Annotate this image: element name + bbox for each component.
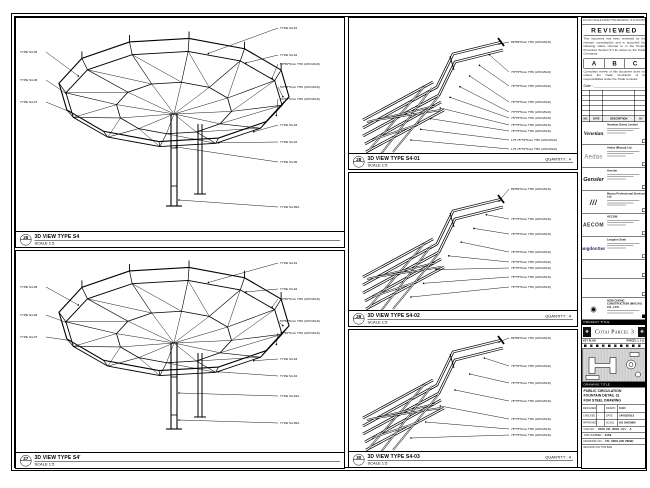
key-plan	[582, 344, 646, 383]
revision-row	[582, 106, 646, 111]
caption-bar: 26 3D VIEW TYPE S4 SCALE 1:5	[16, 231, 344, 247]
footer-note: REVISION ON THIS BAR	[582, 445, 646, 451]
revision-row	[582, 91, 646, 96]
leader-label: TYPE S4-05A	[280, 421, 300, 425]
signoff-row: CHECKED - DATE 14/03/2013	[582, 412, 646, 419]
reviewed-title: REVIEWED	[584, 26, 646, 36]
leader-label: 75*75*5mm THK (A53 MILD)	[511, 217, 551, 221]
leader-label: TYPE S4-07	[20, 100, 37, 104]
leader-label: 75*75*5mm THK (A53 MILD)	[511, 84, 551, 88]
ornament-icon: ❖	[638, 327, 646, 337]
party-row-aedas: Aedas Aedas (Macau) Ltd.	[582, 145, 646, 168]
revision-row	[582, 96, 646, 101]
reviewed-stamp: REVIEWED This document has been reviewed…	[582, 25, 646, 91]
party-row-mps: /// Macau Professional Services Ltd.	[582, 191, 646, 214]
leader-label: 50*50*5mm THK (A53 MILD)	[280, 319, 320, 323]
leader-label: 75*75*5mm THK (A53 MILD)	[511, 381, 551, 385]
leader-label: 75*75*5mm THK (A53 MILD)	[511, 399, 551, 403]
revision-row	[582, 101, 646, 106]
leader-label: TYPE S4-05	[20, 50, 37, 54]
wireframe-radial-structure: TYPE S4-01TYPE S4-0250*50*5mm THK (A53 M…	[16, 251, 344, 452]
leader-label: 75*75*5mm THK (A53 MILD)	[511, 266, 551, 270]
detail-ref-bubble: 28	[353, 156, 365, 168]
leader-label: 89*89*5mm THK (A53 MILD)	[511, 40, 551, 44]
party-row-venetian: Venetian Venetian Orient Limited	[582, 122, 646, 145]
view-scale: SCALE 1:5	[368, 162, 574, 167]
view-scale: SCALE 1:5	[368, 460, 574, 465]
gensler-logo: Gensler	[582, 168, 605, 191]
status-checkbox	[642, 140, 646, 144]
review-status-grades: A B C	[584, 58, 646, 68]
leader-label: 75*75*5mm THK (A53 MILD)	[511, 250, 551, 254]
signoff-row: DESIGNED DRAWN CAD	[582, 405, 646, 412]
leader-label: TYPE S4-01	[280, 261, 297, 265]
party-row-empty	[582, 260, 646, 279]
leader-label: 50*50*5mm THK (A53 MILD)	[280, 62, 320, 66]
party-row-empty	[582, 279, 646, 298]
reviewed-paragraph: This document has been reviewed by the r…	[584, 38, 646, 57]
leader-label: L75 75*75*5mm THK (A53 MILD)	[511, 138, 557, 142]
leader-label: 75*75*5mm THK (A53 MILD)	[511, 70, 551, 74]
panel-3d-view-type-s4-prime: TYPE S4-01TYPE S4-0250*50*5mm THK (A53 M…	[15, 250, 345, 469]
detail-ref-bubble: 26	[20, 234, 32, 246]
quantity-note: QUANTITY : 4	[545, 157, 571, 162]
status-checkbox	[642, 232, 646, 236]
grade-c: C	[625, 59, 645, 68]
leader-label: TYPE S4-05	[280, 160, 297, 164]
view-scale: SCALE 1:5	[35, 461, 341, 466]
status-checkbox	[642, 163, 646, 167]
project-title-banner: ❖ Cotai Parcel 3 ❖	[582, 325, 646, 339]
leader-label: TYPE S4-06	[20, 78, 37, 82]
revision-row	[582, 111, 646, 116]
leader-label: 89*89*5mm THK (A53 MILD)	[511, 187, 551, 191]
leader-label: 75*75*5mm THK (A53 MILD)	[511, 129, 551, 133]
leader-label: 50*50*5mm THK (A53 MILD)	[280, 97, 320, 101]
caption-bar: 29 3D VIEW TYPE S4-02 SCALE 1:5 QUANTITY…	[349, 310, 577, 326]
grade-a: A	[584, 59, 605, 68]
caption-bar: 30 3D VIEW TYPE S4-03 SCALE 1:5 QUANTITY…	[349, 451, 577, 467]
leader-label: 89*89*5mm THK (A53 MILD)	[511, 336, 551, 340]
sheet-border: TYPE S4-01TYPE S4-0250*50*5mm THK (A53 M…	[11, 13, 647, 471]
status-checkbox-checked	[642, 315, 646, 319]
status-checkbox	[642, 293, 646, 297]
leader-label: 50*50*5mm THK (A53 MILD)	[280, 331, 320, 335]
grade-b: B	[605, 59, 626, 68]
leader-label: 75*75*5mm THK (A53 MILD)	[511, 232, 551, 236]
caption-bar: 27 3D VIEW TYPE S4' SCALE 1:5	[16, 452, 344, 468]
status-checkbox	[642, 209, 646, 213]
leader-label: 75*75*5mm THK (A53 MILD)	[511, 364, 551, 368]
leader-label: TYPE S4-04A	[280, 394, 300, 398]
leader-label: TYPE S4-03	[280, 123, 297, 127]
detail-ref-bubble: 30	[353, 454, 365, 466]
leader-label: TYPE S4-01	[280, 26, 297, 30]
panel-3d-view-type-s4-01: 89*89*5mm THK (A53 MILD)75*75*5mm THK (A…	[348, 17, 578, 170]
party-row-gensler: Gensler Gensler	[582, 168, 646, 191]
status-checkbox	[642, 186, 646, 190]
panel-3d-view-type-s4: TYPE S4-01TYPE S4-0250*50*5mm THK (A53 M…	[15, 17, 345, 248]
ornament-icon: ❖	[583, 327, 591, 337]
leader-label: TYPE S4-06	[20, 313, 37, 317]
leader-label: TYPE S4-05	[20, 285, 37, 289]
leader-label: TYPE S4-04	[280, 374, 297, 378]
drawing-sheet-page: { "panels": { "left_top": { "ref": "26",…	[0, 0, 650, 488]
venetian-logo: Venetian	[582, 122, 605, 145]
revision-table: NO. DATE DESCRIPTION BY	[582, 91, 646, 123]
reviewed-paragraph: Consultant review of this document does …	[584, 70, 646, 81]
leader-label: 75*75*5mm THK (A53 MILD)	[511, 260, 551, 264]
leader-label: L75 75*75*5mm THK (A53 MILD)	[511, 147, 557, 151]
detail-ref-bubble: 27	[20, 455, 32, 467]
wireframe-tube-detail: 89*89*5mm THK (A53 MILD)75*75*5mm THK (A…	[349, 173, 577, 310]
leader-label: 75*75*5mm THK (A53 MILD)	[511, 100, 551, 104]
detail-ref-bubble: 29	[353, 313, 365, 325]
leader-label: 75*75*5mm THK (A53 MILD)	[511, 123, 551, 127]
wireframe-tube-detail: 89*89*5mm THK (A53 MILD)75*75*5mm THK (A…	[349, 18, 577, 153]
quantity-note: QUANTITY : 4	[545, 455, 571, 460]
leader-label: 50*50*5mm THK (A53 MILD)	[280, 85, 320, 89]
title-block: DO NOT SCALE FROM THIS DRAWING. IF IN DO…	[581, 17, 646, 469]
reviewed-date-line: Date :	[584, 84, 646, 88]
aecom-logo: AECOM	[582, 214, 605, 237]
revision-header-row: NO. DATE DESCRIPTION BY	[582, 116, 646, 122]
leader-label: TYPE S4-07	[20, 335, 37, 339]
leader-label: TYPE S4-02	[280, 53, 297, 57]
party-row-aecom: AECOM AECOM	[582, 214, 646, 237]
leader-label: 75*75*5mm THK (A53 MILD)	[511, 116, 551, 120]
wireframe-tube-detail: 89*89*5mm THK (A53 MILD)75*75*5mm THK (A…	[349, 330, 577, 451]
quantity-note: QUANTITY : 4	[545, 314, 571, 319]
wireframe-radial-structure: TYPE S4-01TYPE S4-0250*50*5mm THK (A53 M…	[16, 18, 344, 231]
date-fill-line	[594, 84, 645, 88]
caption-bar: 28 3D VIEW TYPE S4-01 SCALE 1:5 QUANTITY…	[349, 153, 577, 169]
aedas-logo: Aedas	[582, 145, 605, 168]
status-checkbox	[642, 255, 646, 259]
drawing-title: PUBLIC CIRCULATION FOUNTAIN DETAIL 31 FO…	[582, 388, 646, 406]
leader-label: 75*75*5mm THK (A53 MILD)	[511, 427, 551, 431]
panel-3d-view-type-s4-03: 89*89*5mm THK (A53 MILD)75*75*5mm THK (A…	[348, 329, 578, 468]
leader-label: TYPE S4-02	[280, 287, 297, 291]
panel-3d-view-type-s4-02: 89*89*5mm THK (A53 MILD)75*75*5mm THK (A…	[348, 172, 578, 327]
signoff-row: APPROVED - SCALE AS SHOWN	[582, 419, 646, 426]
leader-label: 50*50*5mm THK (A53 MILD)	[280, 297, 320, 301]
contractor-emblem-icon: ◉	[582, 298, 605, 320]
status-checkbox	[642, 274, 646, 278]
party-row-langdonseah: LangdonSeah Langdon Seah	[582, 237, 646, 260]
project-title: Cotai Parcel 3	[592, 328, 637, 336]
leader-label: 75*75*5mm THK (A53 MILD)	[511, 433, 551, 437]
leader-label: 75*75*5mm THK (A53 MILD)	[511, 285, 551, 289]
view-scale: SCALE 1:5	[35, 240, 341, 245]
signoff-table: DESIGNED DRAWN CAD CHECKED - DATE 14/03/…	[582, 405, 646, 427]
key-plan-drawing	[582, 344, 646, 383]
leader-label: 75*75*5mm THK (A53 MILD)	[511, 417, 551, 421]
leader-label: TYPE S4-03	[280, 357, 297, 361]
mps-logo: ///	[582, 191, 605, 214]
leader-label: TYPE S4-04	[280, 140, 297, 144]
contractor-row: ◉ HSIN CHONG CONSTRUCTION (MACAU) CO., L…	[582, 298, 646, 320]
leader-label: 75*75*5mm THK (A53 MILD)	[511, 110, 551, 114]
view-scale: SCALE 1:5	[368, 319, 574, 324]
leader-label: 75*75*5mm THK (A53 MILD)	[511, 275, 551, 279]
langdon-seah-logo: LangdonSeah	[582, 237, 605, 260]
leader-label: TYPE S4-05A	[280, 205, 300, 209]
